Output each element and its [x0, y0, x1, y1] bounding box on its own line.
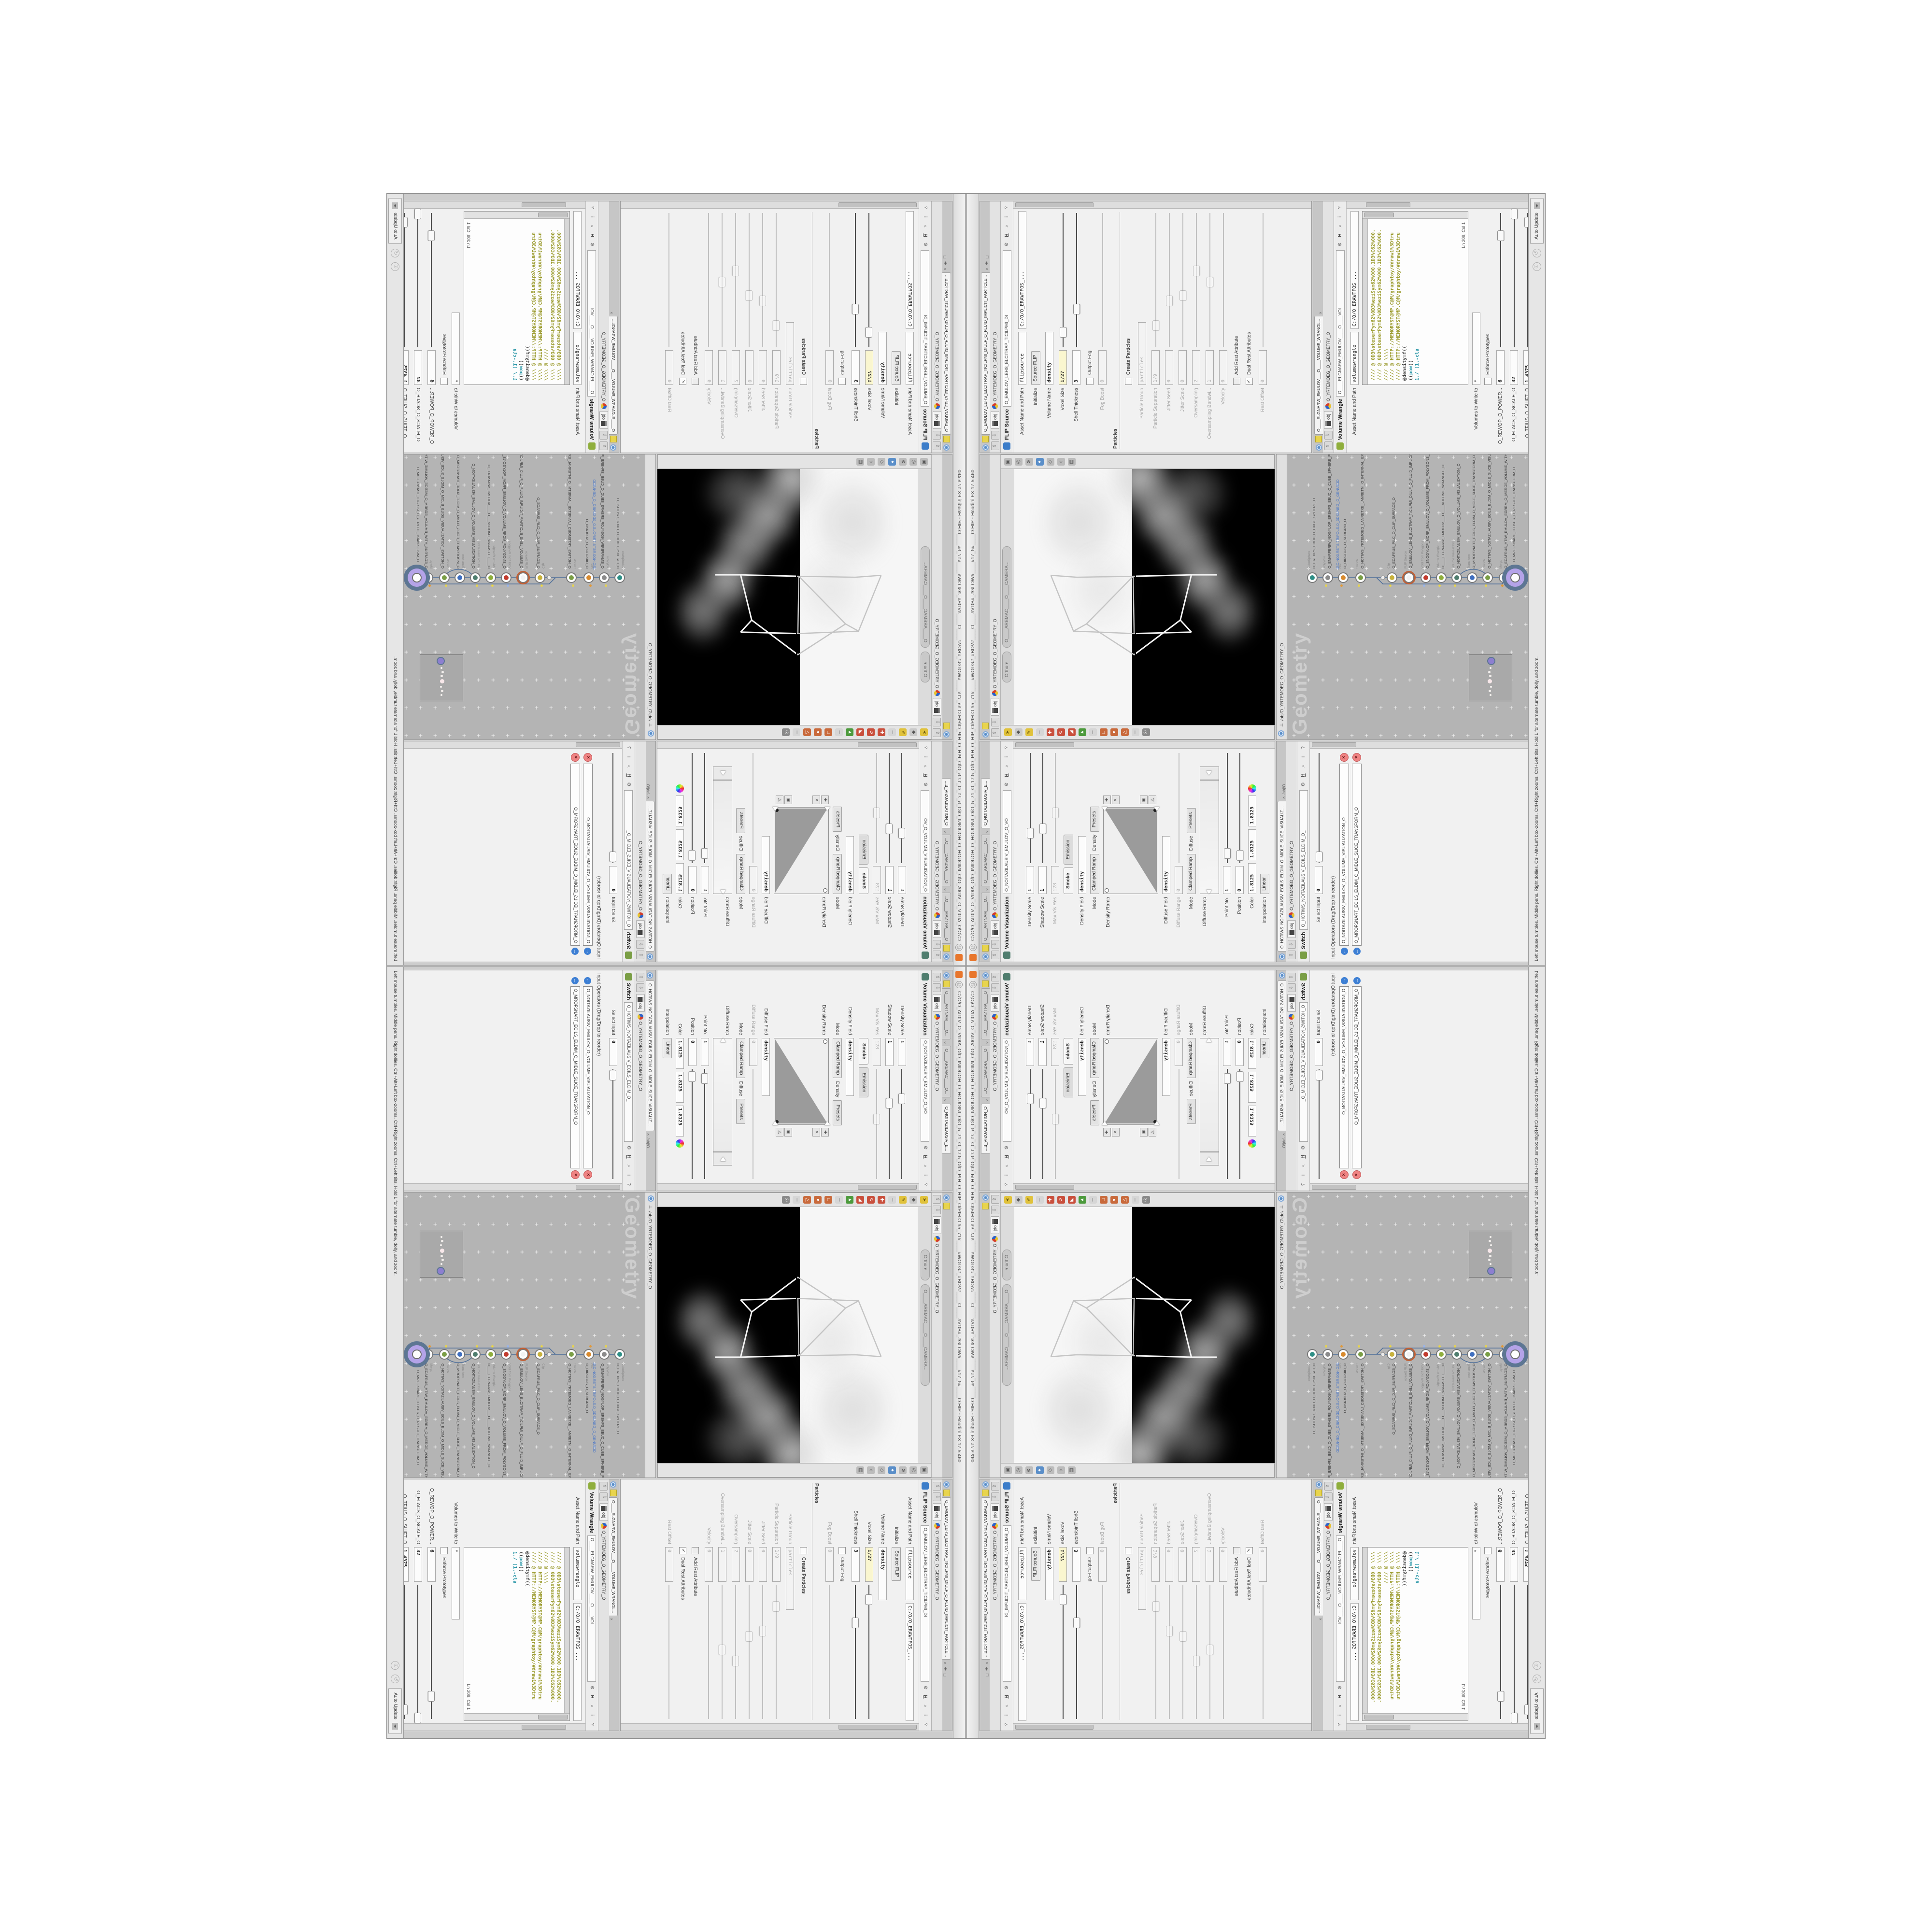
pane-maximize-icon[interactable]: □ — [942, 1673, 947, 1677]
position-field[interactable]: 0 — [1236, 1038, 1244, 1066]
ramp-box-button[interactable]: ▣ — [1140, 796, 1148, 804]
point-no-field[interactable]: 1 — [1223, 1038, 1231, 1066]
gear-icon[interactable]: ⚙ — [1004, 1144, 1010, 1151]
pose-tool-icon[interactable]: ▲ — [846, 728, 853, 736]
display-options-icon[interactable]: ⚙ — [1025, 458, 1033, 466]
fog-boost-slider[interactable] — [1098, 211, 1107, 347]
move-tool-icon[interactable]: ✚ — [1047, 1196, 1054, 1204]
jitter-seed-slider[interactable] — [759, 211, 767, 347]
network-node[interactable]: SwitchO_HCTIWS_NOITAZILAUSIV_ECILS_ELDIM… — [439, 572, 450, 583]
ramp-flag-icon[interactable] — [772, 1121, 778, 1125]
houdini-help-icon[interactable]: H — [589, 1693, 596, 1700]
diffuse-ramp-widget[interactable] — [713, 1038, 732, 1165]
rest-offset-field[interactable]: 0 — [1259, 1547, 1267, 1582]
ramp-flag-icon[interactable] — [720, 771, 726, 775]
pane-menu-icon[interactable] — [943, 972, 950, 979]
remove-operator-icon[interactable]: × — [1340, 1170, 1349, 1179]
initialize-dropdown[interactable]: Source FLIP — [1031, 1547, 1040, 1581]
close-icon[interactable]: × — [1281, 796, 1286, 800]
sticky-note-icon[interactable] — [982, 1490, 989, 1496]
point-no-field[interactable]: 1 — [701, 1038, 710, 1066]
jitter-scale-field[interactable]: 0 — [1179, 350, 1187, 385]
sticky-note-icon[interactable] — [982, 1203, 989, 1209]
density-presets-button[interactable]: Presets — [833, 1100, 842, 1125]
ramp-add-button[interactable]: ✚ — [821, 796, 829, 804]
network-node[interactable]: SwitchO_HCTIWS_YRTEMOEG_LANRETXE_LANRETN… — [566, 572, 577, 583]
operator-path-field[interactable]: O_NOITAZILAUSIV_EMULOV_O_VOLUME_VISUALIZ… — [1339, 764, 1349, 946]
enforce-prototypes-checkbox[interactable] — [1484, 1547, 1492, 1554]
snap-point-magnet-icon[interactable]: ● — [1110, 1196, 1118, 1204]
grid-toggle-icon[interactable]: ▤ — [856, 458, 864, 466]
position-slider[interactable] — [1236, 751, 1244, 863]
asset-path-field[interactable]: C:/O/O_ERAWTFOS_... — [1018, 211, 1026, 329]
close-icon[interactable]: × — [985, 1661, 990, 1665]
info-icon[interactable]: i — [1300, 753, 1307, 760]
nav-down-icon[interactable]: ⇩ — [991, 940, 999, 949]
network-node[interactable]: CubeSphereO_EREHPS_EBUC_O_CUBE_SPHERE_O — [614, 1349, 625, 1360]
breadcrumb-path[interactable]: O_YRTEMOEG_O_GEOMETRY_O — [993, 619, 997, 688]
jitter-seed-slider[interactable] — [1165, 211, 1173, 347]
nav-up-icon[interactable]: ⇧ — [637, 951, 645, 959]
nav-up-icon[interactable]: ⇧ — [1288, 951, 1296, 959]
enforce-prototypes-checkbox[interactable] — [441, 378, 448, 385]
velocity-field[interactable]: 0 — [1219, 1547, 1227, 1582]
pin-icon[interactable]: ⊥ — [648, 723, 653, 727]
breadcrumb-root[interactable]: obj — [599, 411, 608, 429]
network-node[interactable]: TransformO_MROFSNART_ECILS_ELDIM_O_MIDLE… — [1467, 1349, 1477, 1360]
pane-tab-wrangle[interactable]: O____ELGNARW_EMULOV___O____VOLUME_WRANGL… — [609, 1497, 618, 1616]
shadow-scale-slider[interactable] — [886, 1069, 894, 1181]
pane-tab-wrangle[interactable]: O____ELGNARW_EMULOV___O____VOLUME_WRANGL… — [1314, 316, 1323, 435]
particle-group-field[interactable]: particles — [786, 322, 795, 385]
search-icon[interactable]: ⌕ — [1004, 223, 1010, 229]
houdini-help-icon[interactable]: H — [1004, 772, 1010, 779]
nav-down-icon[interactable]: ⇩ — [991, 1206, 999, 1214]
pane-menu-icon[interactable] — [982, 1194, 989, 1201]
scrollbar[interactable] — [403, 201, 585, 209]
ramp-point-start[interactable] — [1105, 1039, 1109, 1044]
diffuse-field-field[interactable]: density — [762, 1038, 770, 1096]
wrangle-name-field[interactable]: volumewrangle — [574, 332, 582, 385]
scrollbar[interactable] — [1310, 1183, 1529, 1191]
network-node[interactable]: SwitchO_HCTIWS_YRTEMOEG_LANRETXE_LANRETN… — [566, 1349, 577, 1360]
network-minimap[interactable] — [1469, 654, 1512, 701]
gear-icon[interactable]: ⚙ — [922, 1684, 929, 1691]
breadcrumb-path[interactable]: O_YRTEMOEG_O_GEOMETRY_O — [1326, 332, 1331, 401]
network-node[interactable]: PolyWireO_EMARFERIW_NOGYLOP_EREHPS_EBUC_… — [1322, 1349, 1333, 1360]
color-r-field[interactable]: 1.8125 — [676, 1038, 684, 1069]
pane-tab-flip[interactable]: O_EMULOV_LEHS_ELCITRAP_TICILPMI_DIULF_O_… — [942, 1497, 951, 1660]
window-titlebar[interactable]: @ C:/O/O_AIDIV_O_VIDIA_O/O_INIDUOH_O_HOU… — [953, 194, 965, 965]
sticky-note-icon[interactable] — [982, 723, 989, 729]
snap-edge-magnet-icon[interactable]: △ — [803, 1196, 811, 1204]
search-icon[interactable]: ⌕ — [1337, 1703, 1344, 1709]
projection-pill[interactable]: Ortho ▾ — [921, 1250, 930, 1280]
gear-icon[interactable]: ⚙ — [1004, 1684, 1010, 1691]
jitter-seed-field[interactable]: 0 — [1165, 1547, 1173, 1582]
select-input-slider[interactable] — [610, 751, 618, 863]
color-r-field[interactable]: 1.8125 — [1248, 863, 1256, 894]
pane-menu-icon[interactable] — [982, 972, 989, 979]
density-mode-dropdown[interactable]: Clamped Ramp — [1090, 854, 1099, 894]
point-no-field[interactable]: 1 — [1223, 866, 1231, 894]
sticky-note-icon[interactable] — [943, 1203, 950, 1209]
breadcrumb-path[interactable]: O_YRTEMOEG_O_GEOMETRY_O — [1326, 1531, 1331, 1600]
point-no-slider[interactable] — [701, 751, 710, 863]
scale-tool-icon[interactable]: ◢ — [856, 1196, 864, 1204]
grid-toggle-icon[interactable]: ▤ — [1068, 1466, 1076, 1474]
houdini-help-icon[interactable]: H — [1004, 1153, 1010, 1160]
nav-down-icon[interactable]: ⇩ — [637, 983, 645, 992]
help-icon[interactable]: ? — [922, 744, 929, 751]
density-mode-dropdown[interactable]: Clamped Ramp — [833, 854, 842, 894]
scale-tool-icon[interactable]: ◢ — [1068, 728, 1076, 736]
select-input-slider[interactable] — [1315, 751, 1323, 863]
camera-lock-icon[interactable]: ◎ — [1015, 458, 1023, 466]
breadcrumb-path[interactable]: O_YRTEMOEG_O_GEOMETRY_O — [935, 1022, 939, 1091]
particle-group-field[interactable]: particles — [786, 1547, 795, 1610]
gear-icon[interactable]: ⚙ — [589, 1684, 596, 1691]
network-node[interactable]: FileO_DIRGBUS_O_SUBGRID_O — [583, 572, 594, 583]
search-icon[interactable]: ⌕ — [922, 1163, 929, 1169]
diffuse-mode-dropdown[interactable]: Clamped Ramp — [1187, 854, 1196, 894]
remove-operator-icon[interactable]: × — [1352, 1170, 1361, 1179]
shell-thickness-slider[interactable] — [852, 1585, 860, 1721]
layout-icon[interactable]: ▣ — [920, 1466, 928, 1474]
camera-lock-icon[interactable]: ◎ — [909, 1466, 917, 1474]
search-icon[interactable]: ⌕ — [1300, 1163, 1307, 1169]
max-vis-res-field[interactable]: 128 — [873, 1038, 881, 1066]
help-icon[interactable]: ? — [589, 1721, 596, 1728]
network-node[interactable]: FLIP SourceO_EMULOV_LEHS_ELCITRAP_TICILP… — [518, 572, 528, 583]
voxel-size-field[interactable]: 1/27 — [1059, 1547, 1067, 1582]
position-field[interactable]: 0 — [1236, 866, 1244, 894]
breadcrumb-path[interactable]: O_YRTEMOEG_O_GEOMETRY_O — [993, 1244, 997, 1313]
scale-field[interactable]: 32 — [1510, 1547, 1518, 1582]
network-node[interactable]: Volume WrangleO____ELGNARW_EMULOV___O___… — [1436, 572, 1447, 583]
remove-operator-icon[interactable]: × — [1340, 753, 1349, 762]
nav-up-icon[interactable]: ⇧ — [933, 951, 941, 959]
operator-path-field[interactable]: O_NOITAZILAUSIV_EMULOV_O_VOLUME_VISUALIZ… — [583, 986, 593, 1168]
oversampling-field[interactable]: 2 — [1192, 350, 1200, 385]
houdini-help-icon[interactable]: H — [922, 1153, 929, 1160]
diffuse-presets-button[interactable]: Presets — [737, 808, 746, 833]
houdini-help-icon[interactable]: H — [625, 1153, 632, 1160]
pane-maximize-icon[interactable]: □ — [985, 1673, 990, 1677]
edit-tool-icon[interactable]: ✎ — [1025, 1196, 1033, 1204]
jitter-scale-field[interactable]: 0 — [1179, 1547, 1187, 1582]
display-options-icon[interactable]: ⚙ — [899, 1466, 907, 1474]
scale-field[interactable]: 32 — [1510, 350, 1518, 385]
position-slider[interactable] — [689, 751, 697, 863]
density-ramp-widget[interactable] — [774, 1038, 829, 1125]
density-field-field[interactable]: density — [846, 836, 854, 894]
node-name-field[interactable]: O_NOITAZILAUSIV_EMULOV_O_VO — [921, 790, 930, 894]
shadow-scale-field[interactable]: 1 — [886, 1038, 894, 1066]
nav-up-icon[interactable]: ⇧ — [1324, 441, 1333, 450]
breadcrumb-root[interactable]: obj — [933, 994, 941, 1012]
particles-section-label[interactable]: Particles — [1113, 212, 1120, 449]
oversampling-bandwidth-field[interactable]: 1 — [1206, 350, 1214, 385]
nav-up-icon[interactable]: ⇧ — [1324, 1482, 1333, 1491]
pane-tab-switch[interactable]: O_HCTIWS_NOITAZILAUSIV_ECILS_ELDIM_O_MID… — [1278, 801, 1286, 952]
network-minimap[interactable] — [420, 1231, 463, 1278]
volumes-to-write-field[interactable]: * — [1472, 313, 1480, 385]
tab-smoke[interactable]: Smoke — [859, 1038, 868, 1065]
ramp-box-button[interactable]: ▣ — [1140, 1128, 1148, 1136]
update-mode-selector[interactable]: Auto Update ◂▸ — [1530, 1688, 1544, 1734]
tab-smoke[interactable]: Smoke — [859, 867, 868, 894]
houdini-help-icon[interactable]: H — [625, 772, 632, 779]
operator-path-field[interactable]: O_MROFSNART_ECILS_ELDIM_O_MIDLE_SLICE_TR… — [1352, 764, 1362, 946]
asset-name-field[interactable]: flipsource — [906, 1547, 914, 1600]
operator-path-field[interactable]: O_MROFSNART_ECILS_ELDIM_O_MIDLE_SLICE_TR… — [570, 764, 580, 946]
shadow-scale-field[interactable]: 1 — [1038, 866, 1047, 894]
position-slider[interactable] — [1236, 1069, 1244, 1181]
search-icon[interactable]: ⌕ — [1337, 223, 1344, 229]
breadcrumb-path[interactable]: O_YRTEMOEG_O_GEOMETRY_O — [935, 1531, 939, 1600]
reorder-arrow-icon[interactable]: ← — [572, 948, 579, 955]
voxel-size-slider[interactable] — [1059, 211, 1067, 347]
initialize-dropdown[interactable]: Source FLIP — [892, 351, 901, 385]
density-presets-button[interactable]: Presets — [833, 807, 842, 832]
jitter-scale-field[interactable]: 0 — [746, 1547, 754, 1582]
color-wheel-icon[interactable] — [676, 1139, 684, 1148]
help-icon[interactable]: ? — [1337, 204, 1344, 211]
voxel-size-slider[interactable] — [866, 211, 874, 347]
sticky-note-icon[interactable] — [610, 436, 617, 442]
oversampling-slider[interactable] — [1192, 1585, 1200, 1721]
max-vis-res-field[interactable]: 128 — [1051, 866, 1059, 894]
color-r-field[interactable]: 1.8125 — [676, 863, 684, 894]
snap-grid-magnet-icon[interactable]: □ — [824, 1196, 832, 1204]
velocity-slider[interactable] — [705, 211, 713, 347]
asset-name-field[interactable]: flipsource — [1018, 1547, 1026, 1600]
help-icon[interactable]: ? — [922, 1721, 929, 1728]
node-name-field[interactable]: O_EMULOV_LEHS_ELCITRAP_TICILPMI_DI — [921, 1525, 930, 1682]
diffuse-presets-button[interactable]: Presets — [737, 1099, 746, 1124]
gear-icon[interactable]: ⚙ — [1004, 781, 1010, 788]
pane-tab-visualization[interactable]: O_NOITAZILAUSIV_E... — [942, 778, 951, 828]
fog-boost-slider[interactable] — [1098, 1585, 1107, 1721]
particle-separation-field[interactable]: 1/9 — [773, 350, 781, 385]
velocity-slider[interactable] — [1219, 1585, 1227, 1721]
help-icon[interactable]: ? — [1300, 1181, 1307, 1188]
wrangle-name-field[interactable]: volumewrangle — [574, 1547, 582, 1600]
node-name-field[interactable]: O_NOITAZILAUSIV_EMULOV_O_VO — [1003, 1038, 1011, 1142]
initialize-dropdown[interactable]: Source FLIP — [892, 1547, 901, 1581]
help-icon[interactable]: ? — [922, 1181, 929, 1188]
ramp-flag-icon[interactable] — [1102, 1121, 1108, 1125]
close-icon[interactable]: × — [942, 829, 947, 834]
network-node[interactable]: FileO_DIRGBUS_O_SUBGRID_O — [1338, 572, 1349, 583]
scrollbar[interactable] — [621, 1723, 919, 1731]
nav-up-icon[interactable]: ⇧ — [933, 973, 941, 981]
breadcrumb-path[interactable]: O_YRTEMOEG_O_GEOMETRY_O — [993, 332, 997, 401]
resize-grip-icon[interactable]: ◂▸ — [1534, 202, 1540, 209]
view-tool-icon[interactable]: ☉ — [1142, 728, 1150, 736]
close-icon[interactable]: × — [942, 267, 947, 271]
pane-split-icon[interactable]: ✚ — [942, 260, 948, 266]
houdini-help-icon[interactable]: H — [1300, 772, 1307, 779]
shell-thickness-field[interactable]: 3 — [852, 1547, 860, 1582]
select-input-field[interactable]: 0 — [1315, 866, 1323, 894]
density-ramp-widget[interactable] — [1103, 1038, 1158, 1125]
node-name-field[interactable]: O____ELGNARW_EMULOV____O____VOI — [1336, 1535, 1345, 1682]
ramp-add-button[interactable]: ✚ — [821, 1128, 829, 1136]
code-scrollbar-vertical[interactable] — [464, 212, 569, 219]
select-input-field[interactable]: 0 — [610, 866, 618, 894]
snap-grid-magnet-icon[interactable]: □ — [1100, 728, 1108, 736]
diffuse-ramp-widget[interactable] — [1200, 767, 1219, 894]
help-icon[interactable]: ? — [589, 204, 596, 211]
resize-grip-icon[interactable]: ◂▸ — [393, 202, 398, 209]
density-field-field[interactable]: density — [1078, 1038, 1086, 1096]
search-icon[interactable]: ⌕ — [1300, 763, 1307, 769]
pane-tab-flip[interactable]: O_EMULOV_LEHS_ELCITRAP_TICILPMI_DIULF_O_… — [981, 1497, 990, 1660]
pane-menu-icon[interactable] — [943, 1194, 950, 1201]
position-field[interactable]: 0 — [689, 1038, 697, 1066]
window-titlebar[interactable]: @ C:/O/O_AIDIV_O_VIDIA_O/O_INIDUOH_O_HOU… — [967, 967, 979, 1738]
ramp-point-start[interactable] — [823, 888, 827, 893]
node-name-field[interactable]: O_HCTIWS_NOITAZILAUSIV_ECILS_ELDIM_O_ — [625, 790, 633, 930]
velocity-slider[interactable] — [1219, 211, 1227, 347]
grid-toggle-icon[interactable]: ▤ — [856, 1466, 864, 1474]
camera-selector-pill[interactable]: O____AREMAC____O____CAMERA... — [1002, 1284, 1011, 1386]
select-tool-icon[interactable]: ➤ — [920, 1196, 928, 1204]
interpolation-dropdown[interactable]: Linear — [1260, 874, 1269, 894]
view-tool-icon[interactable]: ☉ — [782, 1196, 790, 1204]
info-icon[interactable]: i — [1004, 213, 1010, 220]
code-scrollbar-vertical[interactable] — [464, 1713, 569, 1720]
remove-operator-icon[interactable]: × — [583, 753, 592, 762]
pane-tab-mantra[interactable]: O____ARTNAM____O... — [942, 893, 951, 944]
info-icon[interactable]: i — [922, 1712, 929, 1719]
network-canvas[interactable]: + + + + + + + + + + + + + + + + + + + + … — [403, 455, 645, 739]
rest-offset-field[interactable]: 0 — [1259, 350, 1267, 385]
max-vis-res-field[interactable]: 128 — [873, 866, 881, 894]
close-icon[interactable]: × — [1318, 311, 1323, 315]
layout-icon[interactable]: ▣ — [920, 458, 928, 466]
ramp-marker[interactable] — [1200, 1151, 1219, 1152]
fog-boost-field[interactable]: 0 — [826, 350, 834, 385]
initialize-dropdown[interactable]: Source FLIP — [1031, 351, 1040, 385]
gear-icon[interactable]: ⚙ — [1337, 1684, 1344, 1691]
velocity-field[interactable]: 0 — [705, 1547, 713, 1582]
nav-down-icon[interactable]: ⇩ — [991, 718, 999, 726]
color-g-field[interactable]: 1.8125 — [676, 829, 684, 860]
pane-tab-wrangle[interactable]: O____ELGNARW_EMULOV___O____VOLUME_WRANGL… — [1314, 1497, 1323, 1616]
fog-boost-field[interactable]: 0 — [826, 1547, 834, 1582]
nav-up-icon[interactable]: ⇧ — [933, 441, 941, 450]
pane-tab-switch[interactable]: O_HCTIWS_NOITAZILAUSIV_ECILS_ELDIM_O_MID… — [646, 801, 654, 952]
pane-maximize-icon[interactable]: □ — [942, 255, 947, 259]
window-titlebar[interactable]: @ C:/O/O_AIDIV_O_VIDIA_O/O_INIDUOH_O_HOU… — [967, 194, 979, 965]
breadcrumb-path[interactable]: O_YRTEMOEG_O_GEOMETRY_O — [638, 1022, 643, 1091]
nav-up-icon[interactable]: ⇧ — [600, 1482, 608, 1491]
ramp-flag-icon[interactable] — [1154, 1121, 1160, 1125]
rotate-tool-icon[interactable]: ↻ — [1057, 728, 1065, 736]
jitter-scale-slider[interactable] — [746, 211, 754, 347]
projection-pill[interactable]: Ortho ▾ — [1002, 652, 1011, 682]
shell-thickness-slider[interactable] — [852, 211, 860, 347]
output-fog-checkbox[interactable] — [839, 378, 846, 385]
search-icon[interactable]: ⌕ — [1004, 1703, 1010, 1709]
network-node[interactable]: Volume WrangleO____ELGNARW_EMULOV___O___… — [485, 1349, 496, 1360]
nav-up-icon[interactable]: ⇧ — [600, 441, 608, 450]
network-current-node[interactable]: O_MROFSNART_TLUSER_O_RESULT_TRANSFORM_O — [1502, 1341, 1528, 1367]
ramp-flag-icon[interactable] — [1206, 771, 1212, 775]
camera-lock-icon[interactable]: ◎ — [1015, 1466, 1023, 1474]
pane-tab-camera[interactable]: O____AREMAC____O... — [981, 1046, 990, 1097]
pane-menu-icon[interactable] — [1279, 953, 1285, 960]
nav-down-icon[interactable]: ⇩ — [991, 983, 999, 992]
operator-path-field[interactable]: O_NOITAZILAUSIV_EMULOV_O_VOLUME_VISUALIZ… — [583, 764, 593, 946]
camera-lock-icon[interactable]: ◎ — [909, 458, 917, 466]
tab-smoke[interactable]: Smoke — [1064, 1038, 1073, 1065]
gear-icon[interactable]: ⚙ — [1300, 781, 1307, 788]
node-name-field[interactable]: O_NOITAZILAUSIV_EMULOV_O_VO — [921, 1038, 930, 1142]
shade-mode-icon[interactable]: ● — [1036, 1466, 1044, 1474]
operator-path-field[interactable]: O_NOITAZILAUSIV_EMULOV_O_VOLUME_VISUALIZ… — [1339, 986, 1349, 1168]
scale-slider[interactable] — [1510, 1585, 1518, 1721]
density-presets-button[interactable]: Presets — [1090, 1100, 1099, 1125]
ramp-marker[interactable] — [713, 1151, 732, 1152]
houdini-help-icon[interactable]: H — [1300, 1153, 1307, 1160]
enforce-prototypes-checkbox[interactable] — [1484, 378, 1492, 385]
diffuse-range-field[interactable]: 0 — [750, 1038, 758, 1066]
breadcrumb-root[interactable]: obj — [636, 920, 645, 938]
point-no-field[interactable]: 1 — [701, 866, 710, 894]
diffuse-presets-button[interactable]: Presets — [1187, 1099, 1196, 1124]
close-icon[interactable]: × — [609, 311, 614, 315]
move-tool-icon[interactable]: ✚ — [878, 1196, 885, 1204]
output-fog-checkbox[interactable] — [839, 1547, 846, 1554]
network-node[interactable]: Volume WrangleO____ELGNARW_EMULOV___O___… — [1436, 1349, 1447, 1360]
ramp-delete-button[interactable]: ✕ — [1112, 796, 1120, 804]
ramp-flag-icon[interactable] — [772, 807, 778, 811]
viewport-render[interactable] — [657, 1207, 918, 1463]
ramp-flag-icon[interactable] — [824, 807, 830, 811]
diffuse-mode-dropdown[interactable]: Clamped Ramp — [737, 1038, 746, 1078]
scale-slider[interactable] — [414, 1585, 423, 1721]
particle-group-field[interactable]: particles — [1138, 1547, 1146, 1610]
nav-down-icon[interactable]: ⇩ — [1288, 983, 1296, 992]
vex-code-editor[interactable]: //// @ 0D3%steserPym62%0D3%eziSym62%000.… — [1362, 1547, 1468, 1721]
info-icon[interactable]: i — [1300, 1172, 1307, 1179]
ramp-delete-button[interactable]: ✕ — [812, 796, 820, 804]
nav-down-icon[interactable]: ⇩ — [933, 1492, 941, 1501]
reorder-arrow-icon[interactable]: ← — [1353, 977, 1361, 984]
search-icon[interactable]: ⌕ — [589, 1703, 596, 1709]
particle-separation-field[interactable]: 1/9 — [773, 1547, 781, 1582]
power-field[interactable]: 6 — [428, 1547, 436, 1582]
move-tool-icon[interactable]: ✚ — [1047, 728, 1054, 736]
fog-boost-field[interactable]: 0 — [1098, 350, 1107, 385]
houdini-help-icon[interactable]: H — [922, 232, 929, 239]
search-icon[interactable]: ⌕ — [1004, 763, 1010, 769]
color-wheel-icon[interactable] — [1248, 1139, 1256, 1148]
pane-menu-icon[interactable] — [943, 731, 950, 738]
breadcrumb-root[interactable]: obj — [599, 1503, 608, 1521]
volume-name-field[interactable]: density — [1045, 1547, 1053, 1600]
shade-mode-icon[interactable]: ● — [888, 1466, 896, 1474]
info-icon[interactable]: i — [922, 753, 929, 760]
oversampling-slider[interactable] — [732, 1585, 740, 1721]
oversampling-bandwidth-slider[interactable] — [1206, 211, 1214, 347]
particle-separation-slider[interactable] — [1151, 211, 1160, 347]
diffuse-range-slider[interactable] — [1175, 751, 1183, 863]
